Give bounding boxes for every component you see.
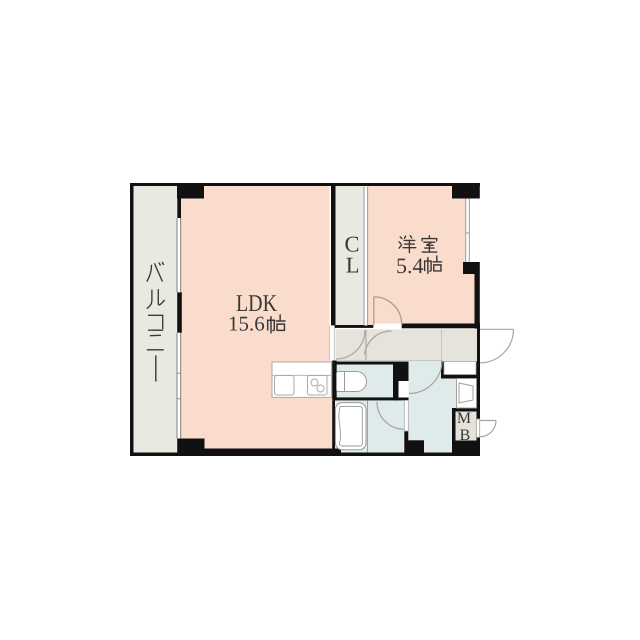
svg-text:M: M [457, 410, 471, 427]
svg-text:L: L [346, 252, 360, 277]
svg-text:B: B [460, 427, 471, 444]
svg-text:15.6: 15.6 [228, 312, 265, 336]
svg-text:5.4: 5.4 [396, 253, 424, 278]
